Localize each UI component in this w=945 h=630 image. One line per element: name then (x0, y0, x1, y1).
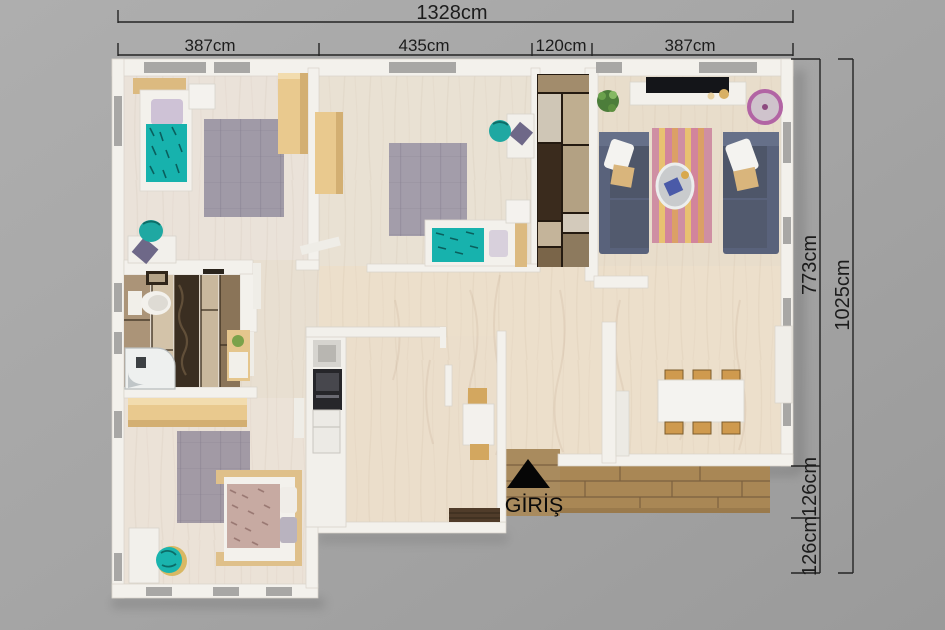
svg-text:GİRİŞ: GİRİŞ (505, 493, 564, 517)
svg-text:435cm: 435cm (398, 36, 449, 55)
svg-text:1025cm: 1025cm (832, 259, 854, 330)
svg-text:1328cm: 1328cm (416, 2, 487, 24)
svg-text:387cm: 387cm (184, 36, 235, 55)
svg-text:387cm: 387cm (664, 36, 715, 55)
svg-text:126cm: 126cm (799, 457, 821, 517)
svg-text:126cm: 126cm (799, 516, 821, 576)
svg-text:120cm: 120cm (535, 36, 586, 55)
svg-text:773cm: 773cm (799, 235, 821, 295)
